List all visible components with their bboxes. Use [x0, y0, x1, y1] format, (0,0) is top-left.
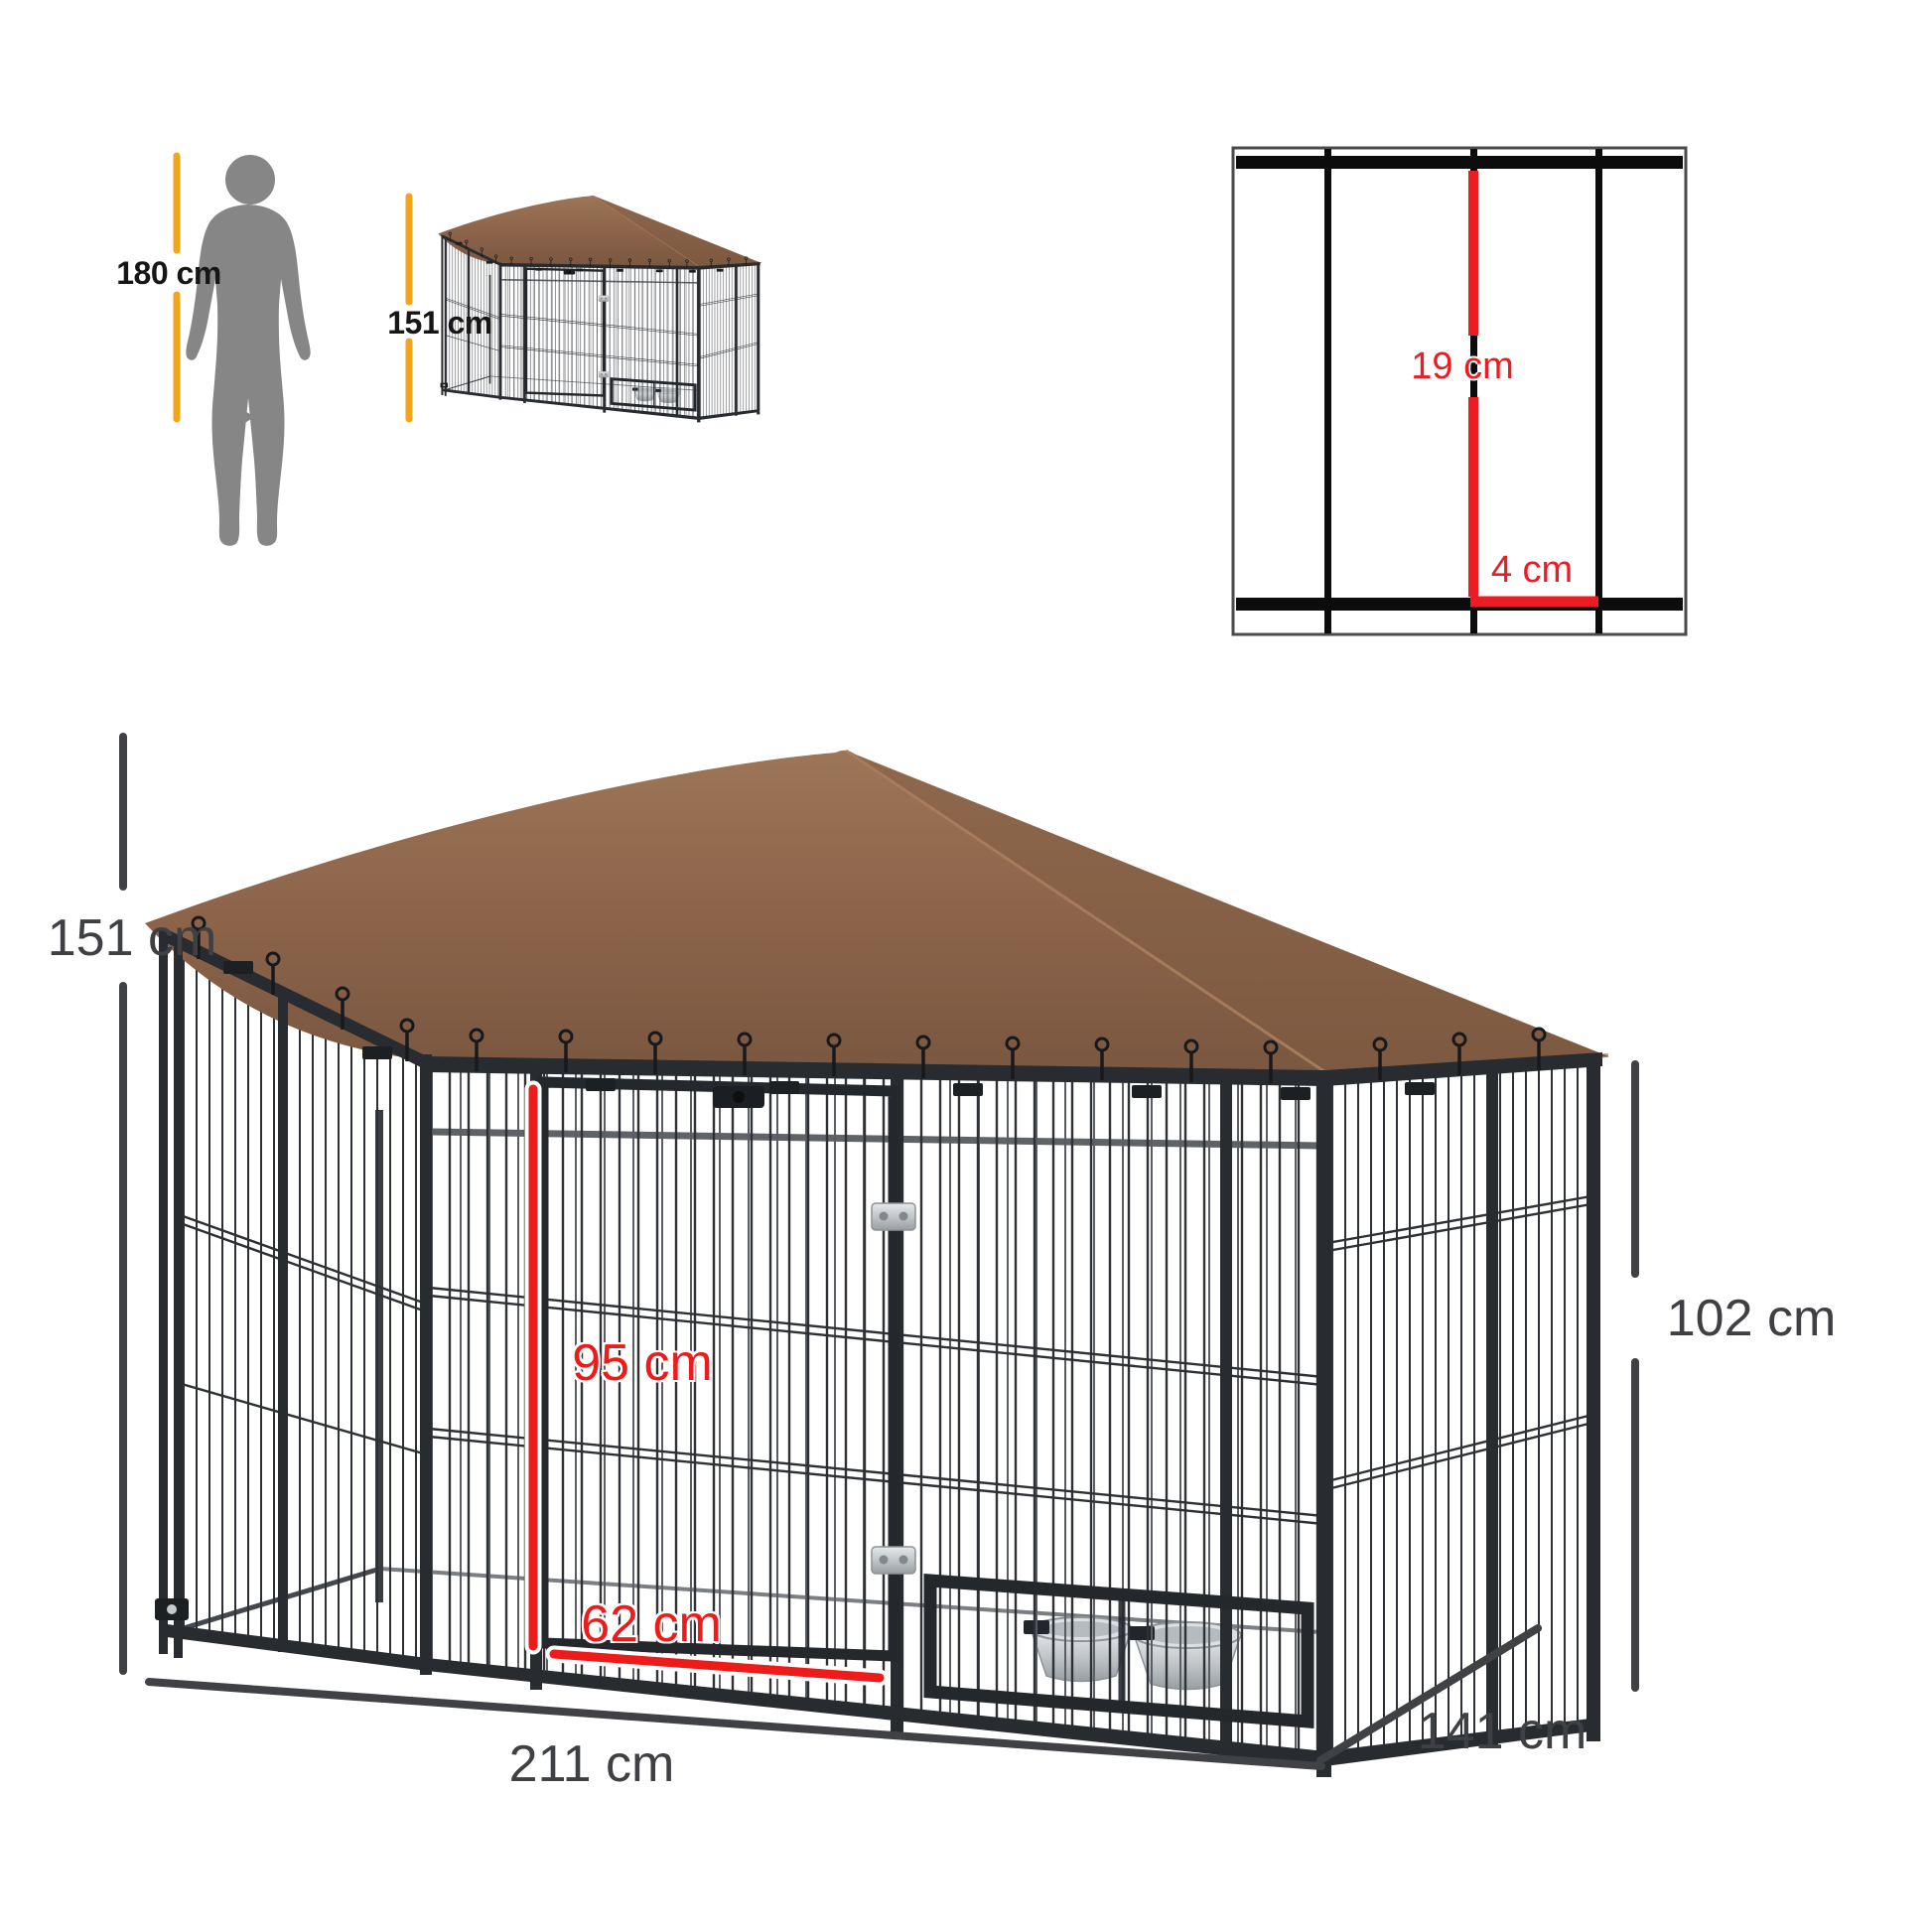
mesh-vertical-wire — [1595, 149, 1602, 633]
mesh-detail-diagram — [1233, 148, 1686, 634]
label-wire-horizontal-gap: 4 cm — [1491, 551, 1573, 589]
label-door-height: 95 cm — [572, 1337, 713, 1389]
mesh-horizontal-wire-top — [1236, 156, 1683, 169]
label-door-width: 62 cm — [581, 1598, 722, 1650]
human-silhouette — [186, 155, 310, 546]
illustration-svg — [0, 0, 1932, 1932]
label-wire-vertical-gap: 19 cm — [1411, 347, 1513, 385]
mesh-horizontal-wire-bottom — [1236, 598, 1683, 611]
product-dimension-sheet: 180 cm 151 cm 19 cm 4 cm 151 cm 102 cm 9… — [0, 0, 1932, 1932]
mesh-detail-frame — [1233, 148, 1686, 634]
label-overall-width: 211 cm — [509, 1738, 675, 1790]
label-human-height: 180 cm — [116, 257, 221, 289]
label-overall-depth: 141 cm — [1418, 1706, 1587, 1757]
label-overall-height: 151 cm — [48, 912, 217, 964]
label-thumbnail-height: 151 cm — [387, 307, 492, 339]
kennel-illustration — [145, 751, 1608, 1777]
mesh-vertical-wire — [1324, 149, 1331, 633]
label-wall-height: 102 cm — [1667, 1293, 1837, 1344]
